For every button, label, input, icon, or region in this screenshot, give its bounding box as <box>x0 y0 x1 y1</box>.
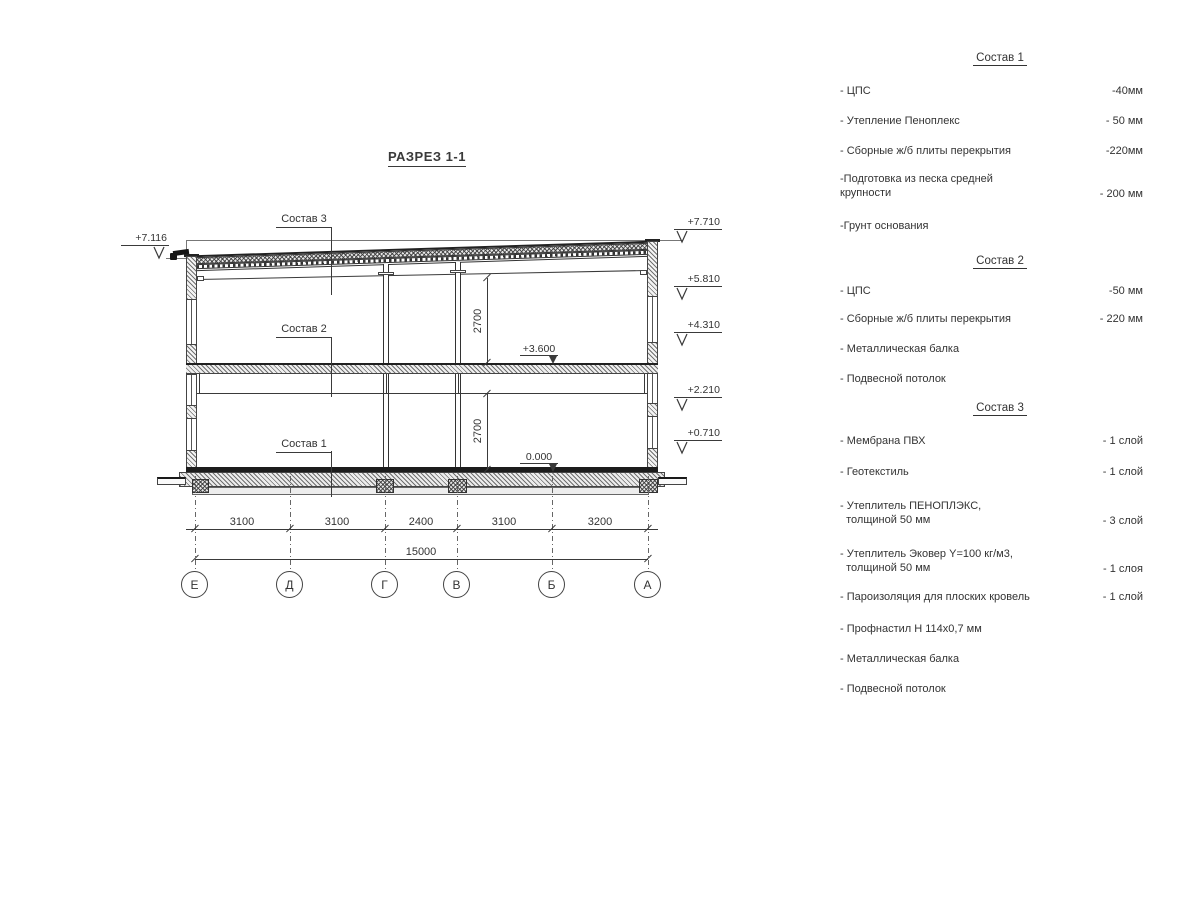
window-section <box>647 297 658 342</box>
material-value: - 3 слой <box>1103 514 1143 528</box>
beam-plate <box>378 272 394 275</box>
dim-value: 3100 <box>474 516 534 528</box>
legend-item: - Подвесной потолок <box>840 372 1143 386</box>
corbel-left <box>197 276 204 281</box>
legend-item: - Сборные ж/б плиты перекрытия-220мм <box>840 144 1143 158</box>
material-name: - Подвесной потолок <box>840 372 1143 386</box>
ceiling-hanger <box>458 374 459 393</box>
axis-line <box>385 476 386 571</box>
axis-line <box>290 476 291 571</box>
ceiling-hanger <box>644 374 645 393</box>
dimension-line-segments <box>186 529 658 530</box>
dim-value: 2400 <box>391 516 451 528</box>
material-value: - 1 слой <box>1103 590 1143 604</box>
legend-item: - Пароизоляция для плоских кровель- 1 сл… <box>840 590 1143 604</box>
legend-heading-3: Состав 3 <box>850 402 1150 416</box>
material-name: - ЦПС <box>840 84 1143 98</box>
legend-item: - Металлическая балка <box>840 342 1143 356</box>
level-arrow-icon <box>153 246 165 259</box>
legend-item: - ЦПС-40мм <box>840 84 1143 98</box>
level-arrow-icon <box>548 464 558 473</box>
material-name: - Подвесной потолок <box>840 682 1143 696</box>
legend-item: -Грунт основания <box>840 219 1143 233</box>
comp-leader-2 <box>331 337 332 397</box>
material-value: -40мм <box>1112 84 1143 98</box>
column <box>455 274 461 363</box>
window-section <box>186 300 197 344</box>
level-value: +5.810 <box>674 273 722 287</box>
dim-value: 3100 <box>212 516 272 528</box>
dimension-line-total <box>195 559 648 560</box>
legend-item: -Подготовка из песка средней крупности- … <box>840 172 1143 200</box>
material-value: - 1 слой <box>1103 465 1143 479</box>
material-name: - ЦПС <box>840 284 1143 298</box>
axis-bubble: А <box>634 571 661 598</box>
corbel-right <box>640 270 647 275</box>
level-value: 0.000 <box>520 451 558 463</box>
ceiling-hanger <box>386 374 387 393</box>
window-section <box>647 417 658 448</box>
wall-segment <box>647 403 658 417</box>
apron-left <box>157 477 186 485</box>
legend-item: - Профнастил Н 114х0,7 мм <box>840 622 1143 636</box>
window-section <box>647 373 658 403</box>
material-name: -Грунт основания <box>840 219 1143 233</box>
material-name: - Геотекстиль <box>840 465 1143 479</box>
foundation-block <box>448 479 467 493</box>
material-value: -220мм <box>1106 144 1143 158</box>
axis-bubble: В <box>443 571 470 598</box>
material-name: - Утеплитель ПЕНОПЛЭКС, толщиной 50 мм <box>840 499 1143 527</box>
axis-bubble: Б <box>538 571 565 598</box>
legend-item: - Сборные ж/б плиты перекрытия- 220 мм <box>840 312 1143 326</box>
level-value: +7.116 <box>121 232 169 246</box>
extension-line-top <box>186 240 683 241</box>
material-value: - 1 слоя <box>1103 562 1143 576</box>
level-arrow-icon <box>676 333 688 346</box>
material-name: - Утеплитель Эковер Y=100 кг/м3, толщино… <box>840 547 1143 575</box>
dim-value: 15000 <box>391 546 451 558</box>
window-section <box>186 375 197 405</box>
comp-label-2: Состав 2 <box>276 323 332 338</box>
material-value: - 1 слой <box>1103 434 1143 448</box>
material-name: - Мембрана ПВХ <box>840 434 1143 448</box>
ceiling-line-first-floor <box>197 393 647 394</box>
level-value: +3.600 <box>520 343 558 355</box>
scupper-outlet <box>170 253 177 260</box>
page-title: РАЗРЕЗ 1-1 <box>388 149 466 167</box>
comp-leader-3 <box>331 227 332 295</box>
material-name: - Сборные ж/б плиты перекрытия <box>840 312 1143 326</box>
material-name: -Подготовка из песка средней крупности <box>840 172 1143 200</box>
level-value: +2.210 <box>674 384 722 398</box>
level-value: +7.710 <box>674 216 722 230</box>
axis-bubble: Г <box>371 571 398 598</box>
level-arrow-icon <box>676 230 688 243</box>
apron-right <box>658 477 687 485</box>
legend-heading-text: Состав 2 <box>973 255 1027 269</box>
column <box>383 276 389 363</box>
legend-item: - Утеплитель Эковер Y=100 кг/м3, толщино… <box>840 547 1143 575</box>
axis-line <box>552 476 553 571</box>
ground-slab-hatch <box>179 472 665 487</box>
dim-line <box>487 394 488 470</box>
level-arrow-icon <box>548 356 558 365</box>
ceiling-hanger <box>199 374 200 393</box>
material-name: - Утепление Пеноплекс <box>840 114 1143 128</box>
legend-heading-2: Состав 2 <box>850 255 1150 269</box>
ceiling-line-second-floor <box>197 270 647 280</box>
dim-value: 2700 <box>472 301 484 341</box>
wall-segment <box>186 256 197 300</box>
material-name: - Профнастил Н 114х0,7 мм <box>840 622 1143 636</box>
material-value: - 200 мм <box>1100 187 1143 201</box>
legend-item: - Геотекстиль- 1 слой <box>840 465 1143 479</box>
legend-heading-text: Состав 3 <box>973 402 1027 416</box>
legend-item: - Утеплитель ПЕНОПЛЭКС, толщиной 50 мм- … <box>840 499 1143 527</box>
legend-heading-text: Состав 1 <box>973 52 1027 66</box>
roof-assembly <box>186 241 658 273</box>
level-arrow-icon <box>676 441 688 454</box>
floor-slab <box>186 363 658 374</box>
dim-line <box>487 278 488 363</box>
legend-item: - Подвесной потолок <box>840 682 1143 696</box>
material-value: - 50 мм <box>1106 114 1143 128</box>
comp-label-3: Состав 3 <box>276 213 332 228</box>
level-value: +0.710 <box>674 427 722 441</box>
material-name: - Пароизоляция для плоских кровель <box>840 590 1143 604</box>
material-name: - Металлическая балка <box>840 342 1143 356</box>
material-value: -50 мм <box>1109 284 1143 298</box>
wall-segment <box>186 405 197 419</box>
legend-item: - ЦПС-50 мм <box>840 284 1143 298</box>
dim-value: 3200 <box>570 516 630 528</box>
legend-item: - Металлическая балка <box>840 652 1143 666</box>
legend-heading-1: Состав 1 <box>850 52 1150 66</box>
level-arrow-icon <box>676 287 688 300</box>
axis-line <box>457 476 458 571</box>
level-arrow-icon <box>676 398 688 411</box>
legend-item: - Мембрана ПВХ- 1 слой <box>840 434 1143 448</box>
dim-value: 3100 <box>307 516 367 528</box>
level-value: +4.310 <box>674 319 722 333</box>
dim-value: 2700 <box>472 411 484 451</box>
foundation-block <box>639 479 658 493</box>
axis-bubble: Д <box>276 571 303 598</box>
material-name: - Сборные ж/б плиты перекрытия <box>840 144 1143 158</box>
sand-preparation-layer <box>192 487 649 495</box>
material-value: - 220 мм <box>1100 312 1143 326</box>
wall-segment <box>647 241 658 297</box>
comp-leader-1 <box>331 451 332 497</box>
comp-label-1: Состав 1 <box>276 438 332 453</box>
window-section <box>186 419 197 450</box>
drawing-sheet: РАЗРЕЗ 1-1 <box>0 0 1200 900</box>
legend-item: - Утепление Пеноплекс- 50 мм <box>840 114 1143 128</box>
beam-plate <box>450 270 466 273</box>
axis-bubble: Е <box>181 571 208 598</box>
material-name: - Металлическая балка <box>840 652 1143 666</box>
